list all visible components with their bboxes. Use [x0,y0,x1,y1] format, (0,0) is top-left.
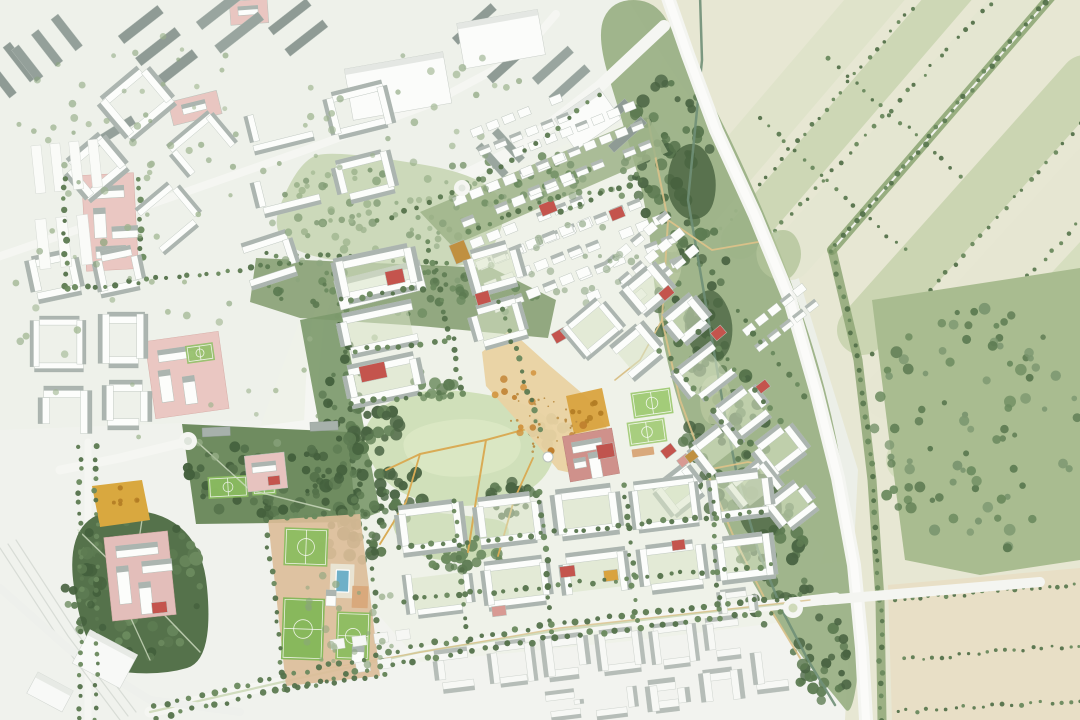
masterplan-map [0,0,1080,720]
map-viewport [0,0,1080,720]
